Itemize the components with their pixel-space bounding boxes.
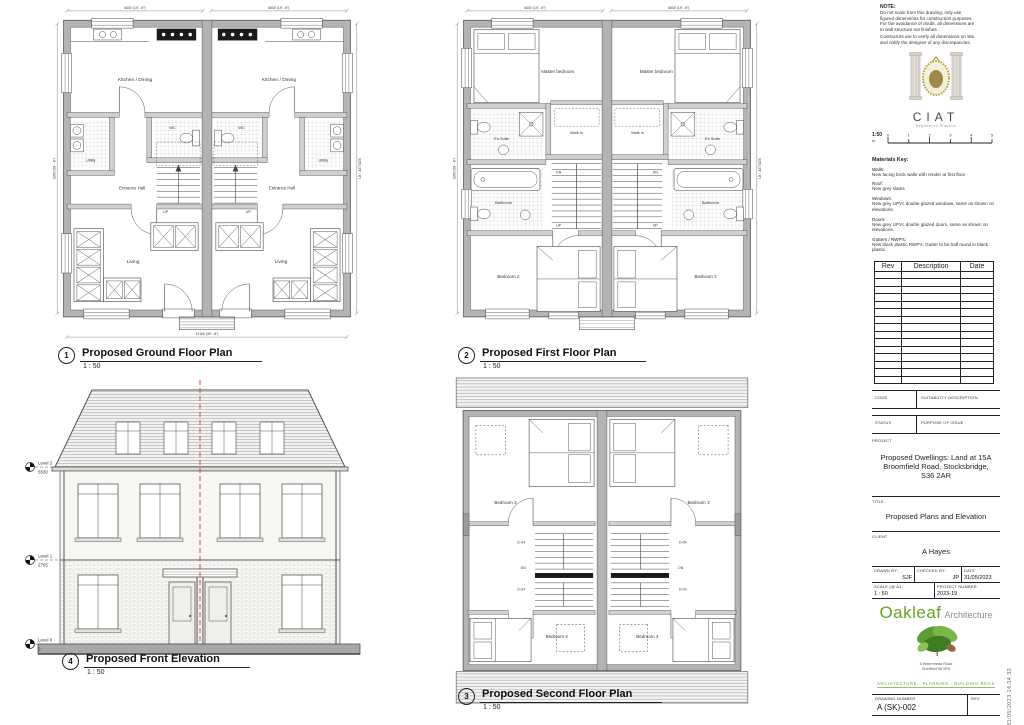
notes-section: NOTE: Do not scale from this drawing, on…	[872, 4, 1000, 46]
drawing-scale: 1 : 50	[483, 363, 646, 370]
material-desc: New grey slates	[872, 186, 1000, 191]
material-desc: New grey UPVc double glazed windows, sam…	[872, 201, 1000, 212]
dim-label: 12100 (39' - 8")	[196, 332, 219, 336]
room-label-wc: WC	[169, 125, 176, 130]
room-label-wc: WC	[238, 125, 245, 130]
door-tag-d04: D-04	[517, 540, 525, 544]
scale-bar-unit: m	[872, 138, 882, 143]
material-desc: New facing brick walls with render at fi…	[872, 172, 1000, 177]
level-label: Level 0	[38, 638, 53, 643]
room-label-bedroom3: Bedroom 3	[494, 500, 517, 505]
dim-label: 9050 (29' - 8")	[357, 158, 361, 179]
stair-label-dn: DN	[678, 566, 684, 570]
rev-row	[875, 376, 994, 384]
scale-tick: 0	[887, 133, 890, 138]
front-elevation-drawing: Level 2 5530 Level 1 2765 Level 0 0	[20, 372, 365, 660]
rev-row	[875, 354, 994, 362]
code-value: SUITABILITY DESCRIPTION	[917, 391, 1000, 408]
drawing-scale: 1 : 50	[87, 669, 250, 676]
rev-row	[875, 309, 994, 317]
drawing-scale: 1 : 50	[83, 363, 262, 370]
ground-plan-title: 1 Proposed Ground Floor Plan 1 : 50	[58, 347, 262, 370]
rev-row	[875, 346, 994, 354]
stair-label-up: UP	[556, 224, 562, 228]
room-label-living: Living	[274, 259, 287, 265]
status-row: STATUS PURPOSE OF ISSUE	[872, 415, 1000, 434]
oakleaf-name: Oakleaf	[879, 603, 941, 622]
rev-row	[875, 294, 994, 302]
room-label-ensuite: En Suite	[494, 136, 510, 141]
room-label-walkin: Walk in	[570, 130, 583, 135]
room-label-bedroom2: Bedroom 2	[695, 274, 718, 279]
drawing-number-row: DRAWING NUMBER A (SK)-002 REV	[872, 694, 1000, 716]
scale-bar-ratio: 1:50	[872, 133, 882, 138]
room-label-bathroom: Bathroom	[702, 200, 720, 205]
rev-row	[875, 279, 994, 287]
stair-label-up: UP	[246, 210, 252, 214]
rev-row	[875, 339, 994, 347]
room-label-master: Master bedroom	[541, 69, 574, 74]
room-label-kitchen: Kitchen / Dining	[262, 77, 297, 83]
rev-row	[875, 324, 994, 332]
title-text: Proposed Plans and Elevation	[872, 512, 1000, 521]
dim-label: 9050 (29' - 8")	[453, 158, 457, 179]
title-section: TITLE Proposed Plans and Elevation	[872, 496, 1000, 521]
dim-label: 9050 (29' - 8")	[53, 158, 57, 179]
note-line: to wall structure not finishes.	[880, 27, 1000, 33]
room-label-bedroom4: Bedroom 4	[546, 634, 569, 639]
level-label: Level 1	[38, 554, 53, 559]
ciat-subtitle: Registered Practice	[872, 124, 1000, 128]
stair-label-up: UP	[653, 224, 659, 228]
status-value: PURPOSE OF ISSUE	[917, 416, 1000, 433]
rev-row	[875, 316, 994, 324]
code-row: CODE SUITABILITY DESCRIPTION	[872, 390, 1000, 409]
stair-label-dn: DN	[521, 566, 527, 570]
plot-timestamp: 31/05/2023 14:34:32	[1007, 556, 1013, 725]
title-label: TITLE	[872, 499, 1000, 504]
materials-key-title: Materials Key:	[872, 157, 1000, 163]
dim-label: 6000 (19' - 8")	[125, 6, 146, 10]
scale-bar: 1:50 m 0 1 2 3 4 5	[872, 133, 1000, 149]
scale-tick: 3	[949, 133, 952, 138]
revision-table: Rev Description Date	[874, 261, 994, 385]
rev-row	[875, 301, 994, 309]
materials-key: Materials Key: Walls: New facing brick w…	[872, 157, 1000, 253]
drawing-number-bubble: 4	[62, 653, 79, 670]
door-tag-d03: D-03	[517, 588, 525, 592]
door-tag-d03: D-03	[679, 588, 687, 592]
drawing-sheet: 6000 (19' - 8") 6000 (19' - 8") 12100 (3…	[0, 0, 1024, 725]
room-label-bathroom: Bathroom	[495, 200, 513, 205]
date-value: 31/05/2023	[964, 573, 998, 581]
level-markers: Level 2 5530 Level 1 2765 Level 0 0	[26, 461, 59, 652]
drawing-number-bubble: 3	[458, 688, 475, 705]
drawing-number-bubble: 2	[458, 347, 475, 364]
scale-value: 1 : 50	[874, 589, 932, 597]
oakleaf-logo: OakleafArchitecture 6 Watermead Road She…	[872, 603, 1000, 689]
room-label-master: Master bedroom	[640, 69, 673, 74]
rev-header: Description	[902, 261, 961, 271]
project-text: Proposed Dwellings: Land at 15A Broomfie…	[876, 453, 996, 480]
first-floor-plan-drawing: 6000 (19' - 8") 6000 (19' - 8") 9050 (29…	[452, 4, 762, 344]
drawing-title: Proposed Ground Floor Plan	[80, 347, 262, 362]
room-label-bedroom4: Bedroom 4	[636, 634, 659, 639]
door-tag-d04: D-04	[679, 540, 687, 544]
oakleaf-tagline: ARCHITECTURE · PLANNING · BUILDING REGS	[877, 681, 995, 688]
level-value: 2765	[38, 563, 48, 568]
room-label-bedroom2: Bedroom 2	[497, 274, 520, 279]
ciat-name: CIAT	[872, 110, 1000, 124]
room-label-ensuite: En Suite	[705, 136, 721, 141]
rev-row	[875, 331, 994, 339]
stair-label-dn: DN	[653, 171, 659, 175]
drawing-number-bubble: 1	[58, 347, 75, 364]
dim-label: 6000 (19' - 8")	[525, 6, 546, 10]
title-block: NOTE: Do not scale from this drawing, on…	[872, 4, 1000, 716]
room-label-bedroom3: Bedroom 3	[687, 500, 710, 505]
room-label-utility: Utility	[318, 158, 328, 163]
rev-label: REV	[971, 696, 997, 701]
rev-row	[875, 361, 994, 369]
room-label-utility: Utility	[86, 158, 96, 163]
second-plan-title: 3 Proposed Second Floor Plan 1 : 50	[458, 688, 662, 711]
room-label-living: Living	[127, 259, 140, 265]
note-line: and notify the designer of any discrepan…	[880, 40, 1000, 46]
project-number-value: 2023-19	[937, 589, 998, 597]
scale-tick: 5	[991, 133, 994, 138]
first-plan-title: 2 Proposed First Floor Plan 1 : 50	[458, 347, 646, 370]
drawing-title: Proposed First Floor Plan	[480, 347, 646, 362]
checked-by-value: JP	[917, 573, 959, 581]
ground-floor-plan-drawing: 6000 (19' - 8") 6000 (19' - 8") 12100 (3…	[52, 4, 362, 344]
scale-tick: 2	[928, 133, 931, 138]
rev-row	[875, 271, 994, 279]
oakleaf-address-line2: Sheffield S6 5FA	[872, 667, 1000, 672]
rev-row	[875, 369, 994, 377]
client-label: CLIENT	[872, 534, 1000, 539]
room-label-kitchen: Kitchen / Dining	[118, 77, 153, 83]
elevation-title: 4 Proposed Front Elevation 1 : 50	[62, 653, 250, 676]
rev-header: Rev	[875, 261, 902, 271]
room-label-walkin: Walk in	[631, 130, 644, 135]
drawn-by-value: SJF	[874, 573, 912, 581]
oakleaf-suffix: Architecture	[945, 610, 993, 620]
status-label: STATUS	[872, 416, 917, 433]
client-section: CLIENT A Hayes	[872, 531, 1000, 556]
dim-label: 9050 (29' - 8")	[757, 158, 761, 179]
stair-label-up: UP	[163, 210, 169, 214]
room-label-hall: Entrance Hall	[269, 185, 295, 190]
client-text: A Hayes	[872, 547, 1000, 556]
oak-leaves-icon	[907, 623, 965, 657]
rev-row	[875, 286, 994, 294]
project-label: PROJECT	[872, 438, 1000, 443]
level-label: Level 2	[38, 461, 53, 466]
drawn-checked-date-row: DRAWN BY: SJF CHECKED BY: JP DATE 31/05/…	[872, 566, 1000, 583]
ciat-logo: CIAT Registered Practice	[872, 52, 1000, 128]
drawing-scale: 1 : 50	[483, 704, 662, 711]
scale-tick: 4	[970, 133, 973, 138]
scale-tick: 1	[908, 133, 911, 138]
material-desc: New grey UPVc double glazed doors, same …	[872, 222, 1000, 233]
drawing-title: Proposed Front Elevation	[84, 653, 250, 668]
code-label: CODE	[872, 391, 917, 408]
scale-projectnumber-row: SCALE (@ A1: 1 : 50 PROJECT NUMBER 2023-…	[872, 583, 1000, 599]
drawing-number-value: A (SK)-002	[875, 701, 964, 713]
ciat-emblem-icon	[905, 52, 967, 104]
drawing-title: Proposed Second Floor Plan	[480, 688, 662, 703]
dim-label: 6000 (19' - 8")	[668, 6, 689, 10]
material-desc: New black plastic RWP's, Gutter to be ha…	[872, 242, 1000, 253]
dim-label: 6000 (19' - 8")	[268, 6, 289, 10]
scale-bar-rule: 0 1 2 3 4 5	[886, 133, 994, 149]
second-floor-plan-drawing: Bedroom 3 Bedroom 3 Bedroom 4 Bedroom 4 …	[452, 376, 752, 706]
room-label-hall: Entrance Hall	[119, 185, 145, 190]
rev-header: Date	[961, 261, 994, 271]
level-value: 5530	[38, 470, 48, 475]
stair-label-dn: DN	[556, 171, 562, 175]
